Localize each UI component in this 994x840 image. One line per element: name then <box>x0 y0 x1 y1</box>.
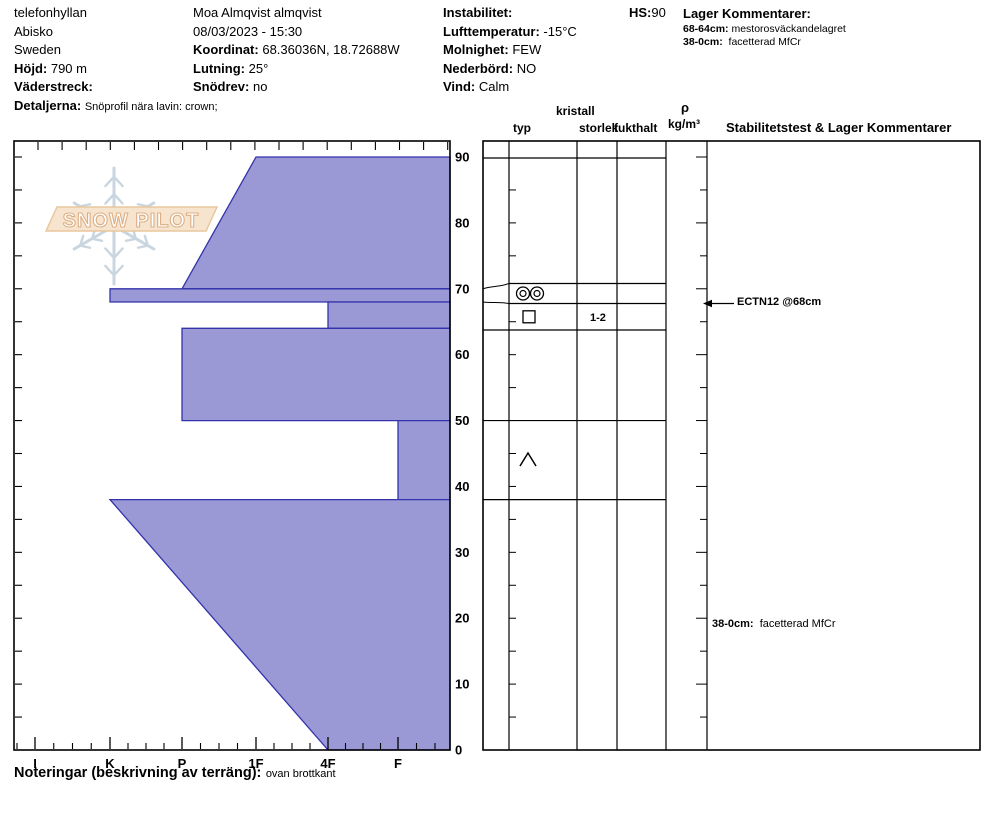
depth-tick-label: 20 <box>455 611 469 626</box>
column-header-rho-unit: kg/m³ <box>668 117 700 131</box>
drifting-row: Snödrev: no <box>193 78 400 97</box>
header-location-column: telefonhyllan Abisko Sweden Höjd: 790 m … <box>14 4 218 116</box>
wind-label: Vind: <box>443 79 475 94</box>
depth-tick-label: 60 <box>455 347 469 362</box>
details-value: Snöprofil nära lavin: crown; <box>85 101 218 113</box>
hardness-tick-label: F <box>394 756 402 771</box>
table-layer-comment-text: facetterad MfCr <box>760 618 836 630</box>
country-name: Sweden <box>14 41 218 60</box>
depth-tick-label: 90 <box>455 150 469 165</box>
footer-notes-text: ovan brottkant <box>266 768 336 780</box>
snow-layer-polygon <box>398 421 450 500</box>
precip-row: Nederbörd: NO <box>443 60 577 79</box>
elevation-value: 790 m <box>51 61 87 76</box>
table-layer-comment: 38-0cm: facetterad MfCr <box>712 618 836 631</box>
drifting-value: no <box>253 79 267 94</box>
coordinates-row: Koordinat: 68.36036N, 18.72688W <box>193 41 400 60</box>
instability-row: Instabilitet: <box>443 4 577 23</box>
layer-comments-block: Lager Kommentarer: 68-64cm: mestorosväck… <box>683 4 846 49</box>
coordinates-label: Koordinat: <box>193 42 259 57</box>
wind-row: Vind: Calm <box>443 78 577 97</box>
precip-label: Nederbörd: <box>443 61 513 76</box>
sky-value: FEW <box>512 42 541 57</box>
instability-label: Instabilitet: <box>443 5 512 20</box>
snow-height-block: HS:90 <box>629 4 666 23</box>
snowpilot-logo: SNOW PILOT <box>46 168 217 284</box>
column-header-stability: Stabilitetstest & Lager Kommentarer <box>726 120 951 135</box>
table-layer-comment-range: 38-0cm: <box>712 618 754 630</box>
grain-rounds-icon <box>520 291 526 297</box>
snow-layer-polygon <box>328 302 450 328</box>
slope-label: Lutning: <box>193 61 245 76</box>
coordinates-value: 68.36036N, 18.72688W <box>262 42 399 57</box>
wind-value: Calm <box>479 79 509 94</box>
airtemp-row: Lufttemperatur: -15°C <box>443 23 577 42</box>
depth-tick-label: 0 <box>455 743 462 758</box>
sky-label: Molnighet: <box>443 42 509 57</box>
grain-facets-icon <box>523 311 535 323</box>
snow-layer-polygon <box>110 500 450 750</box>
layer-comments-title: Lager Kommentarer: <box>683 4 846 23</box>
layer-comment-2: 38-0cm: facetterad MfCr <box>683 36 846 49</box>
sky-row: Molnighet: FEW <box>443 41 577 60</box>
observation-datetime: 08/03/2023 - 15:30 <box>193 23 400 42</box>
hs-label: HS: <box>629 5 651 20</box>
hs-value: 90 <box>651 5 665 20</box>
observer-name: Moa Almqvist almqvist <box>193 4 400 23</box>
depth-tick-label: 40 <box>455 479 469 494</box>
elevation-row: Höjd: 790 m <box>14 60 218 79</box>
column-header-kristall: kristall <box>556 104 595 118</box>
site-name: telefonhyllan <box>14 4 218 23</box>
grain-size-value: 1-2 <box>590 312 606 324</box>
layer-comment-1-text: mestorosväckandelagret <box>731 23 845 35</box>
slope-value: 25° <box>249 61 269 76</box>
snow-layer-polygon <box>182 328 450 420</box>
area-name: Abisko <box>14 23 218 42</box>
depth-tick-label: 70 <box>455 281 469 296</box>
airtemp-label: Lufttemperatur: <box>443 24 540 39</box>
slope-row: Lutning: 25° <box>193 60 400 79</box>
layer-comment-1: 68-64cm: mestorosväckandelagret <box>683 23 846 36</box>
snow-layer-polygon <box>182 157 450 289</box>
stability-test-annotation: ECTN12 @68cm <box>737 296 821 308</box>
details-label: Detaljerna: <box>14 98 81 113</box>
depth-tick-label: 80 <box>455 215 469 230</box>
column-header-rho: ρ <box>681 100 689 115</box>
depth-tick-label: 10 <box>455 677 469 692</box>
header-observation-column: Moa Almqvist almqvist 08/03/2023 - 15:30… <box>193 4 400 97</box>
airtemp-value: -15°C <box>543 24 576 39</box>
grain-rounds-icon <box>517 287 530 300</box>
drifting-label: Snödrev: <box>193 79 249 94</box>
snowpilot-report-page: telefonhyllan Abisko Sweden Höjd: 790 m … <box>0 0 994 840</box>
column-header-typ: typ <box>513 121 531 135</box>
column-header-storlek: storlek <box>579 121 618 135</box>
layer-comment-2-range: 38-0cm: <box>683 36 723 48</box>
header-weather-column: Instabilitet: Lufttemperatur: -15°C Moln… <box>443 4 577 97</box>
grain-rounds-icon <box>531 287 544 300</box>
snowpilot-logo-text: SNOW PILOT <box>63 210 200 232</box>
precip-value: NO <box>517 61 537 76</box>
aspect-label: Väderstreck: <box>14 79 93 94</box>
footer-notes: Noteringar (beskrivning av terräng): ova… <box>14 764 336 782</box>
grain-depth-hoar-icon <box>520 453 536 466</box>
snow-layer-polygon <box>110 289 450 302</box>
depth-tick-label: 30 <box>455 545 469 560</box>
depth-tick-label: 50 <box>455 413 469 428</box>
layer-comment-2-text: facetterad MfCr <box>729 36 801 48</box>
footer-notes-label: Noteringar (beskrivning av terräng): <box>14 765 261 781</box>
column-header-fukthalt: fukthalt <box>614 121 657 135</box>
aspect-row: Väderstreck: <box>14 78 218 97</box>
grain-rounds-icon <box>534 291 540 297</box>
layer-comment-1-range: 68-64cm: <box>683 23 729 35</box>
elevation-label: Höjd: <box>14 61 47 76</box>
details-row: Detaljerna: Snöprofil nära lavin: crown; <box>14 97 218 117</box>
